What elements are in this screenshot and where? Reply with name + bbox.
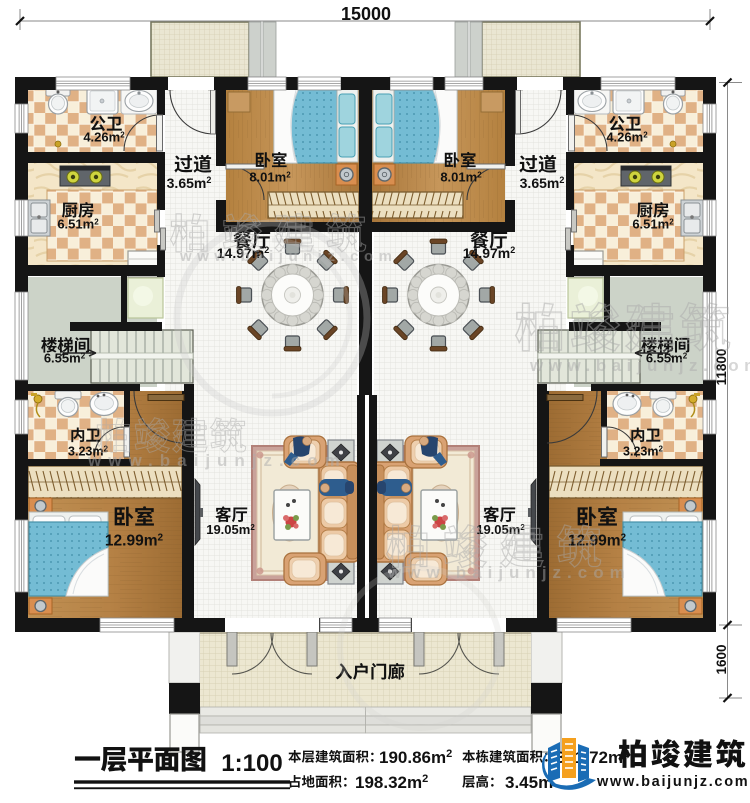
svg-text:www.baijunjz.com: www.baijunjz.com [529, 356, 750, 375]
svg-text:12.99m2: 12.99m2 [105, 532, 164, 549]
svg-text:6.51m2: 6.51m2 [632, 217, 674, 232]
svg-text:1600: 1600 [714, 644, 729, 674]
svg-text:3.65m2: 3.65m2 [167, 175, 212, 191]
svg-text:15000: 15000 [341, 4, 391, 24]
svg-text:www.baijunjz.com: www.baijunjz.com [87, 451, 347, 470]
svg-text:www.baijunjz.com: www.baijunjz.com [179, 248, 397, 265]
svg-text:www.baijunjz.com: www.baijunjz.com [387, 563, 631, 582]
svg-text:6.51m2: 6.51m2 [57, 217, 99, 232]
svg-text:4.26m2: 4.26m2 [83, 130, 125, 145]
svg-text:8.01m2: 8.01m2 [249, 170, 291, 185]
svg-text:4.26m2: 4.26m2 [606, 130, 648, 145]
svg-text:3.23m2: 3.23m2 [623, 444, 663, 458]
svg-text:www.baijunjz.com: www.baijunjz.com [596, 774, 749, 790]
svg-text:19.05m2: 19.05m2 [206, 522, 255, 537]
svg-text:8.01m2: 8.01m2 [440, 170, 482, 185]
svg-text:190.86m2: 190.86m2 [379, 748, 452, 767]
svg-text:14.97m2: 14.97m2 [463, 245, 516, 261]
svg-text:198.32m2: 198.32m2 [355, 773, 428, 792]
svg-text:6.55m2: 6.55m2 [44, 351, 86, 366]
svg-text:1:100: 1:100 [221, 750, 282, 777]
svg-text:3.65m2: 3.65m2 [520, 175, 565, 191]
